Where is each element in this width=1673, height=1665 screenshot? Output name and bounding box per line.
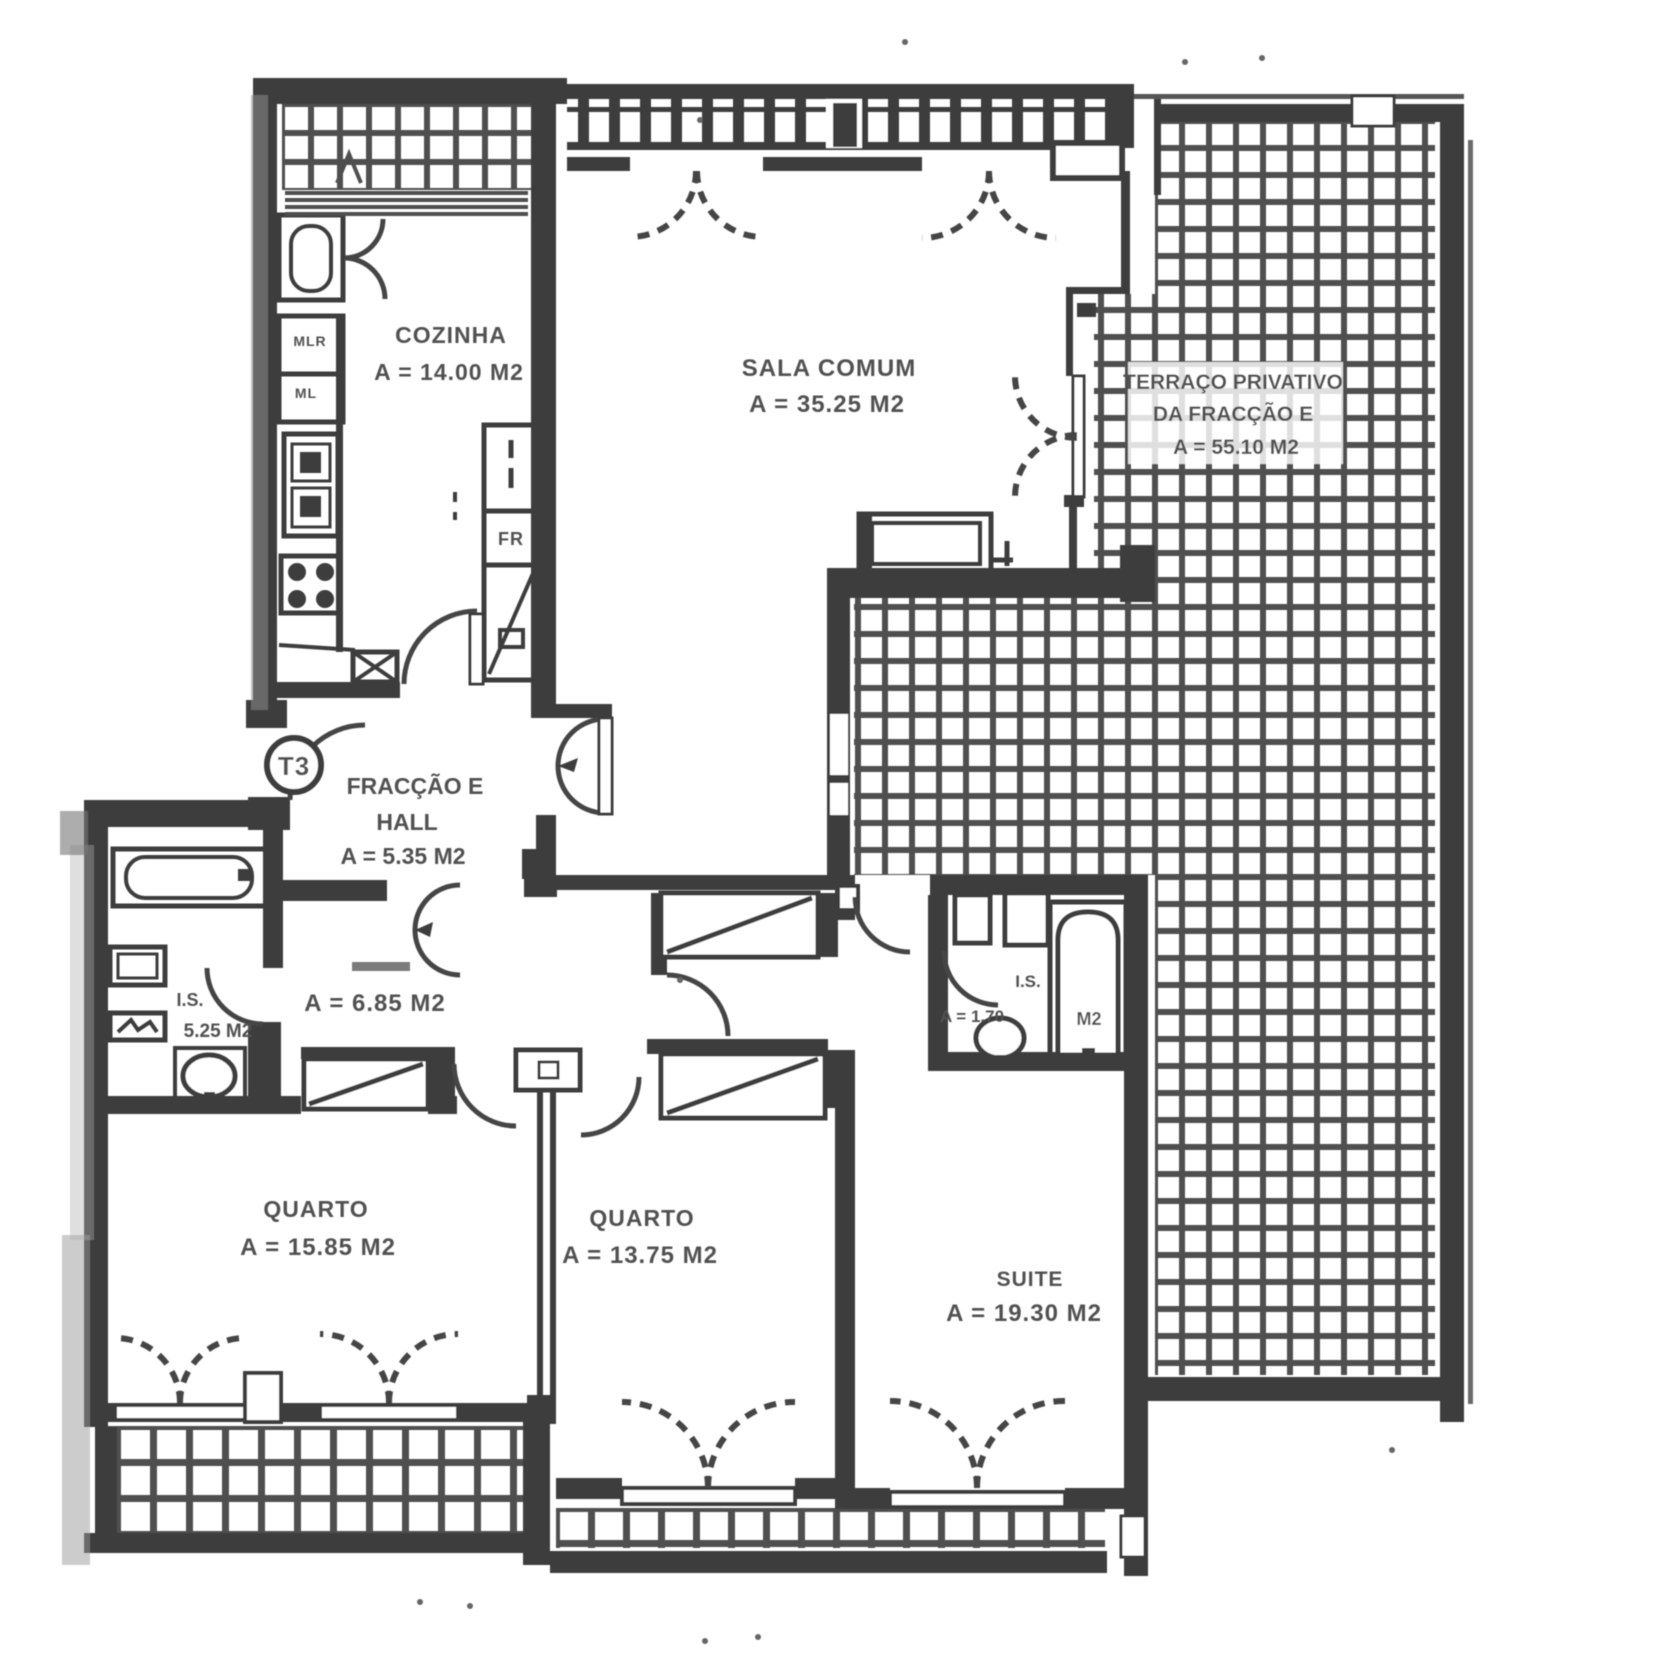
svg-text:M2: M2 [1076, 1009, 1101, 1029]
svg-text:FRACÇÃO E: FRACÇÃO E [347, 772, 484, 799]
svg-text:5.25 M2: 5.25 M2 [184, 1021, 253, 1042]
svg-text:A = 13.75 M2: A = 13.75 M2 [562, 1242, 718, 1269]
svg-text:A = 1.70: A = 1.70 [940, 1007, 1004, 1026]
svg-text:A = 5.35 M2: A = 5.35 M2 [340, 843, 465, 869]
svg-text:I.S.: I.S. [176, 990, 203, 1010]
svg-text:TERRAÇO PRIVATIVO: TERRAÇO PRIVATIVO [1123, 371, 1343, 394]
svg-text:A = 6.85 M2: A = 6.85 M2 [304, 990, 446, 1017]
svg-text:A = 14.00 M2: A = 14.00 M2 [374, 359, 524, 385]
svg-text:MLR: MLR [293, 333, 326, 349]
svg-text:SALA COMUM: SALA COMUM [742, 355, 916, 382]
svg-text:QUARTO: QUARTO [589, 1205, 694, 1231]
svg-text:DA FRACÇÃO E: DA FRACÇÃO E [1153, 403, 1313, 426]
svg-text:COZINHA: COZINHA [395, 322, 507, 348]
svg-text:ML: ML [295, 385, 317, 401]
svg-text:FR: FR [498, 529, 524, 549]
svg-text:A = 15.85 M2: A = 15.85 M2 [240, 1234, 396, 1261]
svg-text:QUARTO: QUARTO [263, 1196, 368, 1222]
svg-text:SUITE: SUITE [997, 1268, 1064, 1291]
svg-text:T3: T3 [278, 751, 310, 781]
svg-text:HALL: HALL [376, 809, 437, 835]
svg-text:I.S.: I.S. [1015, 972, 1041, 991]
svg-text:A = 55.10 M2: A = 55.10 M2 [1173, 436, 1299, 459]
svg-text:A = 35.25 M2: A = 35.25 M2 [749, 391, 905, 418]
svg-text:A = 19.30 M2: A = 19.30 M2 [946, 1300, 1102, 1327]
